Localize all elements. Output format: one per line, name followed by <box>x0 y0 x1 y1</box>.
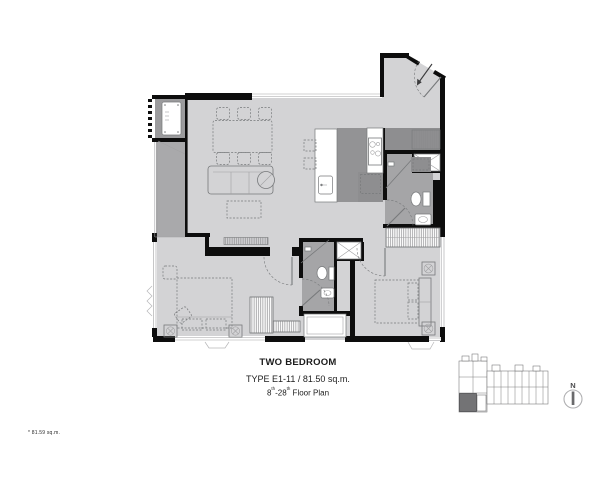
entry-shelf <box>412 130 440 149</box>
floor-to: -28 <box>275 389 287 398</box>
plan-title: TWO BEDROOM <box>148 357 448 368</box>
caption-block: TWO BEDROOM TYPE E1-11 / 81.50 sq.m. 8th… <box>148 357 448 399</box>
toilet-1 <box>411 192 421 206</box>
balcony <box>162 102 181 135</box>
north-compass-icon: N <box>564 381 582 408</box>
floor-plan-graphic: N <box>0 0 600 500</box>
floor-plan-page: N TWO BEDROOM TYPE E1-11 / 81.50 sq.m. 8… <box>0 0 600 500</box>
bedroom2-dresser <box>273 321 300 332</box>
bedroom2-wardrobe <box>250 297 273 333</box>
ac-condenser <box>162 102 181 135</box>
area-footnote: * 81.59 sq.m. <box>28 430 60 436</box>
compass-needle <box>572 392 575 406</box>
key-plan-unit-highlight <box>460 394 477 412</box>
shower-head-2 <box>305 247 311 251</box>
tv-console <box>224 238 268 245</box>
compass-label: N <box>570 381 575 390</box>
key-plan <box>459 354 548 412</box>
plan-floor-range: 8th-28th Floor Plan <box>148 386 448 399</box>
toilet-2 <box>317 267 327 280</box>
plan-type-area: TYPE E1-11 / 81.50 sq.m. <box>148 374 448 385</box>
floor-from-sup: th <box>271 386 275 391</box>
kitchen-cabinet <box>358 172 383 202</box>
floor-to-sup: th <box>287 386 291 391</box>
floor-suffix: Floor Plan <box>290 389 329 398</box>
sink-1 <box>415 214 431 225</box>
sink-2 <box>321 288 334 298</box>
ac-ledge <box>304 314 346 337</box>
shower-head-1 <box>388 162 394 166</box>
